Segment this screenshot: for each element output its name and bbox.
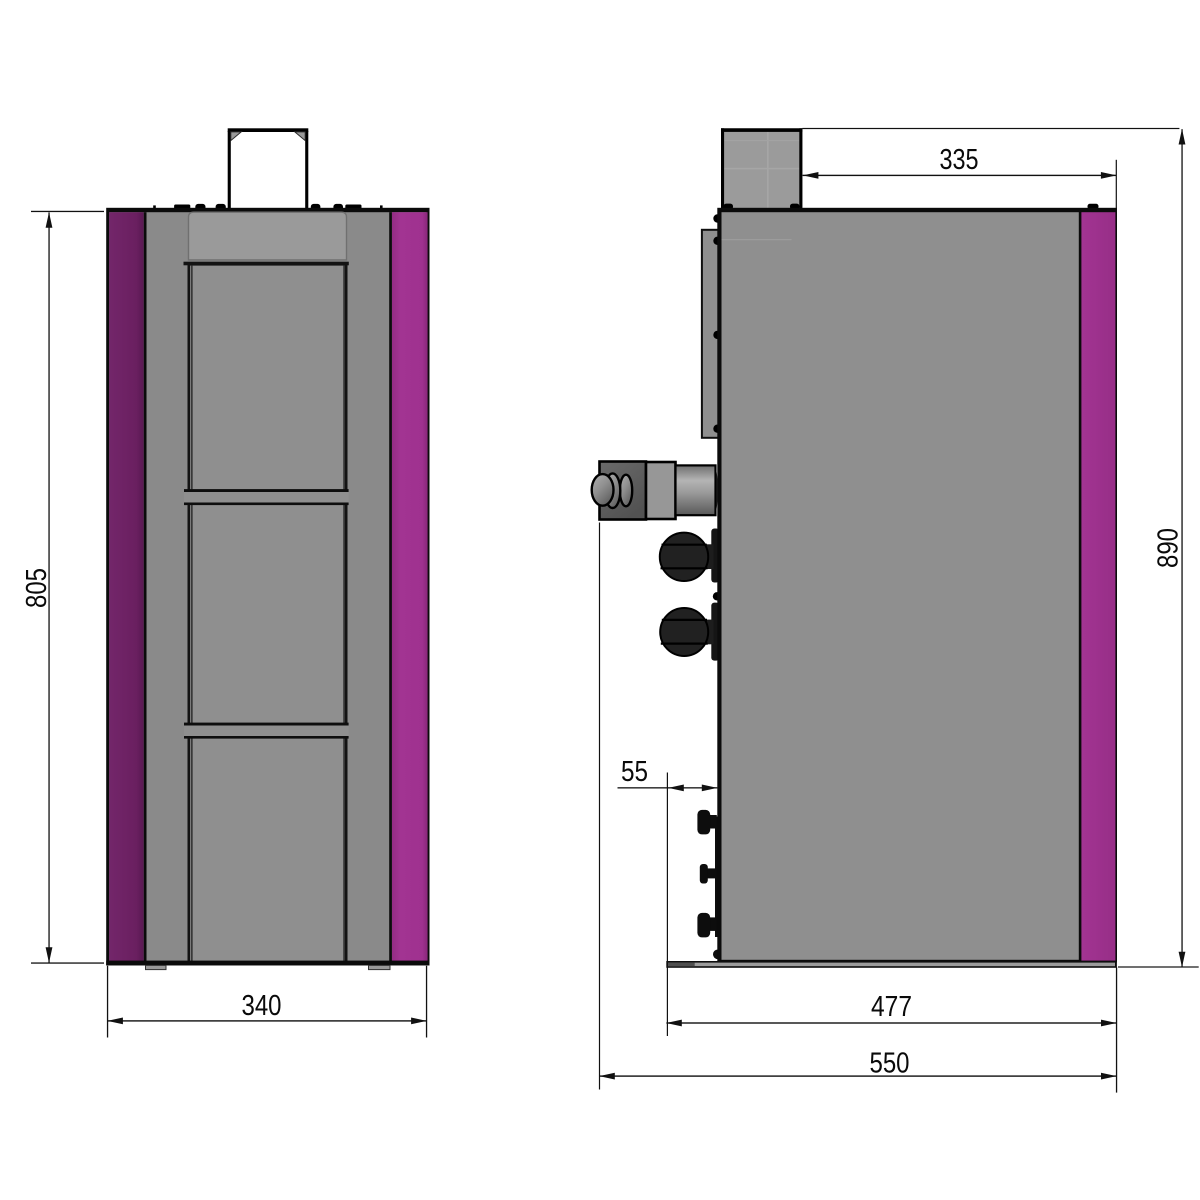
- svg-text:890: 890: [1153, 528, 1185, 568]
- svg-text:340: 340: [242, 990, 282, 1022]
- svg-text:55: 55: [621, 756, 648, 788]
- svg-text:335: 335: [940, 144, 979, 176]
- svg-text:805: 805: [21, 568, 53, 608]
- svg-text:550: 550: [870, 1048, 910, 1080]
- svg-text:477: 477: [871, 991, 912, 1023]
